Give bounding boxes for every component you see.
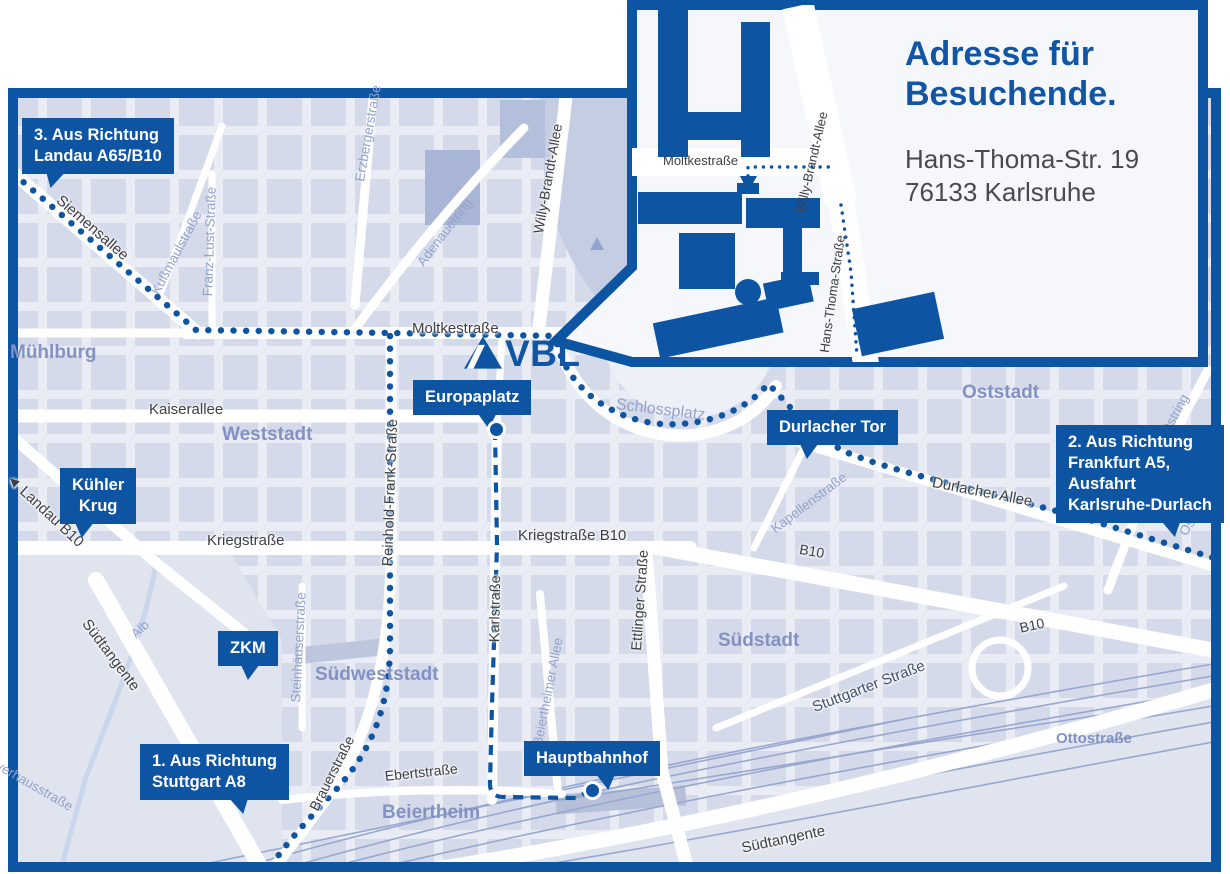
inset-street-label-willy-brandt-allee: Willy-Brandt-Allee xyxy=(793,110,831,214)
marker-tail xyxy=(1162,522,1184,537)
marker-frankfurt: 2. Aus Richtung Frankfurt A5, Ausfahrt K… xyxy=(1056,425,1224,523)
street-label-ottostrasse: Ottostraße xyxy=(1056,730,1132,747)
street-label-kriegstrasse: Kriegstraße xyxy=(207,532,285,549)
schlossgarten-park xyxy=(540,97,958,345)
district-label-suedstadt: Südstadt xyxy=(718,630,799,652)
inset-address: Hans-Thoma-Str. 19 76133 Karlsruhe xyxy=(905,143,1139,208)
vbl-logo-text: VBL xyxy=(505,339,581,369)
street-label-erzbergerstrasse: Erzbergerstraße xyxy=(352,84,384,183)
inset-buildings xyxy=(638,10,944,359)
marker-tail xyxy=(230,799,252,814)
poi-dot-europaplatz xyxy=(487,420,506,439)
marker-durlacher-tor: Durlacher Tor xyxy=(767,410,898,445)
marker-landau: 3. Aus Richtung Landau A65/B10 xyxy=(22,118,174,174)
street-label-karlstrasse: Karlstraße xyxy=(487,575,504,642)
street-label-beiertheimer-allee: Beiertheimer Allee xyxy=(530,636,566,746)
street-label-franz-lust-strasse: Franz-Lust-Straße xyxy=(200,187,219,297)
street-label-pulverhausstrasse: Pulverhausstraße xyxy=(0,748,76,814)
district-label-oststadt: Oststadt xyxy=(962,382,1039,404)
street-label-schlossplatz: Schlossplatz xyxy=(615,396,706,425)
marker-hauptbahnhof: Hauptbahnhof xyxy=(524,741,660,776)
street-label-reinhold-frank-strasse: Reinhold-Frank-Straße xyxy=(380,419,401,567)
route-3-landau xyxy=(14,174,556,336)
marker-tail xyxy=(798,444,818,459)
marker-kuehler-krug: Kühler Krug xyxy=(60,468,136,524)
street-label-b10-east: B10 xyxy=(798,541,825,561)
park-trees xyxy=(590,142,899,300)
inset-title: Adresse für Besuchende. xyxy=(905,34,1117,114)
street-label-kaiserallee: Kaiserallee xyxy=(149,401,223,418)
street-label-kriegstrasse-b10: Kriegstraße B10 xyxy=(518,527,626,544)
west-park xyxy=(17,552,282,865)
street-label-adenauerring: Adenauerring xyxy=(414,195,475,269)
street-label-suedtangente-east: Südtangente xyxy=(740,822,827,856)
street-label-durlacher-allee: Durlacher Allee xyxy=(931,474,1034,510)
inset-street-label-hans-thoma-strasse: Hans-Thoma-Straße xyxy=(817,234,848,353)
street-label-alb: Alb xyxy=(128,617,152,641)
marker-tail xyxy=(73,523,94,538)
district-label-weststadt: Weststadt xyxy=(222,424,312,446)
marker-stuttgart: 1. Aus Richtung Stuttgart A8 xyxy=(140,744,289,800)
poi-dot-hauptbahnhof xyxy=(583,781,602,800)
street-label-brauerstrasse: Brauerstraße xyxy=(306,733,357,813)
street-label-siemensallee: Siemensallee xyxy=(53,192,132,264)
street-label-ettlinger-strasse: Ettlinger Straße xyxy=(629,549,652,651)
street-label-stuttgarter-strasse: Stuttgarter Straße xyxy=(810,657,927,716)
street-label-moltkestrasse: Moltkestraße xyxy=(412,320,499,337)
inset-arrow-icon xyxy=(740,176,757,192)
vbl-logo: VBL xyxy=(464,336,581,369)
marker-tail xyxy=(239,665,259,680)
marker-zkm: ZKM xyxy=(218,631,278,666)
street-label-steinhaeuserstrasse: Steinhäuserstraße xyxy=(288,592,309,703)
district-label-suedweststadt: Südweststadt xyxy=(315,664,439,686)
hauptbahnhof-building xyxy=(555,785,686,814)
inset-street-label-moltkestrasse: Moltkestraße xyxy=(663,153,738,168)
district-label-beiertheim: Beiertheim xyxy=(382,802,480,824)
district-label-muehlburg: Mühlburg xyxy=(10,342,97,364)
vbl-logo-triangle-icon xyxy=(464,336,502,369)
marker-tail xyxy=(42,173,65,188)
zkm-building xyxy=(294,638,383,664)
railway-lines xyxy=(200,664,1213,872)
street-label-ebertstrasse: Ebertstraße xyxy=(384,760,458,784)
street-label-willy-brandt-allee: Willy-Brandt-Allee xyxy=(530,122,565,234)
street-label-kapellenstrasse: Kapellenstraße xyxy=(768,469,850,536)
vbl-visitor-map: Siemensallee Moltkestraße Kaiserallee Kr… xyxy=(0,0,1230,874)
marker-europaplatz: Europaplatz xyxy=(413,380,531,415)
alb-river xyxy=(62,548,158,865)
street-label-kussmaulstrasse: Kußmaulstraße xyxy=(148,209,205,298)
street-label-b10-southeast: B10 xyxy=(1018,615,1046,636)
